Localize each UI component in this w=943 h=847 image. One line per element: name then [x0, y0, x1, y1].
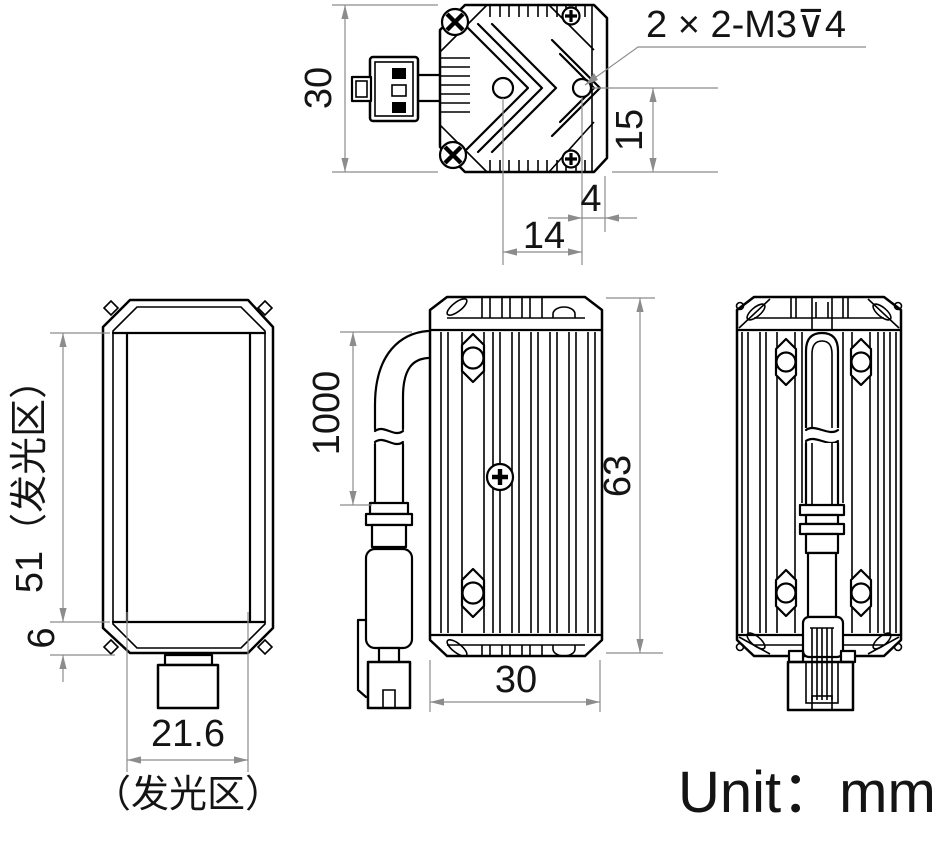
dimension-drawing-page: 2 × 2-M3⊽4 30 15 4 14 51（发光区） 6 21.6 （发光… [0, 0, 943, 847]
wire-lines [440, 58, 470, 112]
dim-emitting-height-label: 51（发光区） [11, 361, 49, 593]
dim-cable-length-label: 1000 [308, 371, 346, 456]
dim-body-width-label: 30 [495, 661, 537, 699]
dim-emitting-width-label: 21.6 [151, 715, 225, 753]
screw-icon [487, 464, 513, 490]
emitting-area-label: （发光区） [93, 776, 283, 814]
dim-bottom-band-label: 6 [23, 627, 61, 648]
slot-nut [462, 334, 484, 617]
dim-body-height-label: 63 [599, 455, 637, 497]
dim-hole-to-bottom-label: 15 [611, 109, 649, 151]
rear-connector [788, 505, 855, 710]
rear-cable [806, 333, 838, 505]
cable [375, 331, 428, 503]
dim-top-height-label: 30 [300, 67, 338, 109]
corner-ears [104, 301, 272, 654]
cable-connector [358, 503, 412, 708]
drawing-canvas [0, 0, 943, 847]
mounting-hole [493, 78, 513, 98]
top-connector [352, 57, 440, 121]
dim-hole-to-edge-label: 4 [580, 180, 601, 218]
side-view-drawing [358, 296, 602, 708]
front-connector [158, 655, 218, 708]
unit-label: Unit：mm [678, 764, 936, 822]
emitting-window [127, 333, 250, 622]
rear-view-drawing [737, 297, 902, 710]
thread-note-label: 2 × 2-M3⊽4 [646, 6, 846, 44]
dim-hole-spacing-label: 14 [523, 217, 565, 255]
top-view-drawing [352, 5, 607, 172]
